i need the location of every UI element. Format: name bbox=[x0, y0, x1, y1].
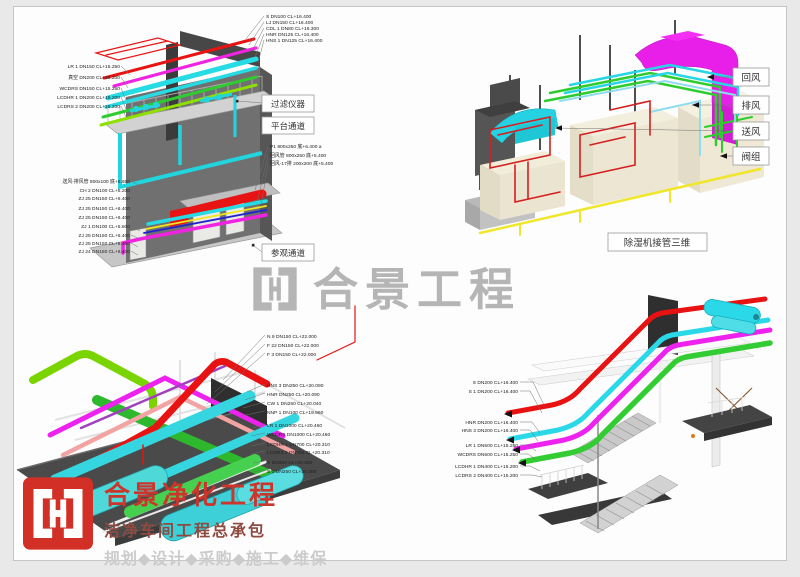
callout-exhaust-air: 排风 bbox=[741, 100, 761, 112]
pipe-label: ZJ 25 DN150 CL+6.400 bbox=[78, 241, 130, 247]
pipe-label: ZJ 25 DN150 CL+6.400 bbox=[78, 206, 130, 212]
pipe-label: WCDRS DN1000 CL+20.460 bbox=[267, 432, 330, 438]
pipe-label: S 1 DN250 CL+20.300 bbox=[267, 469, 317, 475]
watermark-text: 合景工程 bbox=[313, 267, 521, 312]
pipe-label: LCDHR 1 DN400 CL+15.200 bbox=[455, 464, 518, 470]
pipe-label: NNP 1 DN100 CL+19.960 bbox=[267, 410, 324, 416]
pipe-label: P1 800x250 底+6.400 a bbox=[270, 143, 322, 150]
pipe-label: S 1 DN200 CL+16.400 bbox=[469, 389, 519, 395]
pipe-labels: S DN200 CL+16.400 S 1 DN200 CL+16.400 HN… bbox=[455, 380, 518, 479]
watermark: 合景工程 bbox=[250, 264, 521, 314]
pipe-label: LR 1 DN1000 CL+20.460 bbox=[267, 423, 322, 429]
diagram-stair-piping: S DN200 CL+16.400 S 1 DN200 CL+16.400 HN… bbox=[420, 293, 780, 548]
pipe-label: HNS 3 DN200 CL+16.400 bbox=[462, 428, 519, 434]
pipe-label: S DN200 CL+16.400 bbox=[473, 380, 519, 386]
pipe-label: HNR DN200 CL+16.400 bbox=[465, 420, 518, 426]
pipe-label: HNR DN125 CL+16.400 bbox=[266, 32, 319, 38]
pipe-label: CH 2 DN100 CL+5.200 bbox=[80, 188, 131, 194]
pipe-label: HNR DN250 CL+20.090 bbox=[267, 392, 320, 398]
pipe-label: N 9 DN150 CL+22.000 bbox=[267, 334, 317, 340]
pipe-label: F 22 DN150 CL+22.000 bbox=[267, 343, 319, 349]
pipe-label: ZJ 25 DN150 CL+6.400 bbox=[78, 233, 130, 239]
callout-supply-air: 送风 bbox=[741, 126, 761, 138]
pipe-label: S DN350 CL+20.300 bbox=[267, 460, 313, 466]
company-text: 合景净化工程 洁净车间工程总承包 规划◆设计◆采购◆施工◆维保 bbox=[104, 477, 327, 569]
pipe-label: 回风管 800x250 底+5.400 bbox=[270, 152, 326, 159]
company-logo-icon bbox=[23, 477, 93, 550]
pipe-label: LCDRS 2 DN700 CL+20.310 bbox=[267, 450, 330, 456]
pipe-label: LJ DN150 CL+16.400 bbox=[266, 20, 313, 26]
pipe-label: HNS 1 DN125 CL+16.400 bbox=[266, 38, 323, 44]
callout-visitor-walkway: 参观通道 bbox=[271, 248, 306, 258]
pipe-label: 真空 DN200 CL+15.200 bbox=[68, 74, 120, 81]
watermark-logo-icon bbox=[250, 264, 300, 314]
pipe-label: CW 1 DN250 CL+20.040 bbox=[267, 401, 322, 407]
drawing-sheet-page: S DN100 CL+16.400 LJ DN150 CL+16.400 CDL… bbox=[0, 0, 800, 577]
pipe-label: ZJ 25 DN150 CL+6.400 bbox=[78, 196, 130, 202]
pipe-labels: N 9 DN150 CL+22.000 F 22 DN150 CL+22.000… bbox=[267, 334, 330, 475]
pipe-label: WCDRS DN500 CL+15.250 bbox=[458, 452, 519, 458]
pipe-label: F 3 DN150 CL+22.000 bbox=[267, 352, 316, 358]
pipe-label: HNS 3 DN250 CL+20.090 bbox=[267, 383, 324, 389]
pipe-label: S DN100 CL+16.400 bbox=[266, 14, 312, 20]
company-brand: 合景净化工程 洁净车间工程总承包 规划◆设计◆采购◆施工◆维保 bbox=[23, 477, 327, 569]
pipe-label: 送风-排风管 800x100 底+6.650 bbox=[62, 178, 130, 185]
callout-valve-group: 阀组 bbox=[741, 151, 761, 163]
diagram-building-piping: S DN100 CL+16.400 LJ DN150 CL+16.400 CDL… bbox=[30, 5, 365, 273]
pipe-label: LCDHR 1 DN700 CL+20.310 bbox=[267, 442, 330, 448]
company-subtitle: 洁净车间工程总承包 bbox=[104, 517, 327, 541]
diagram-dehumidifier-piping: 回风 排风 送风 阀组 除湿机接管三维 bbox=[420, 15, 790, 270]
pipe-label: CDL 1 DN80 CL+16.300 bbox=[266, 26, 319, 32]
company-name: 合景净化工程 bbox=[104, 481, 327, 510]
pipe-label: LR 1 DN500 CL+15.250 bbox=[466, 443, 519, 449]
pipe-label: LR 1 DN150 CL+15.250 bbox=[68, 64, 121, 70]
callout-filter-equipment: 过滤仪器 bbox=[271, 99, 306, 109]
pipe-label: LCDRS 2 DN400 CL+15.200 bbox=[455, 473, 518, 479]
callout-return-air: 回风 bbox=[741, 73, 761, 84]
pipe-label: ZJ 24 DN150 CL+6.400 bbox=[78, 249, 130, 255]
caption-dehumidifier-3d: 除湿机接管三维 bbox=[624, 237, 691, 249]
pipe-label: LCDHR 1 DN200 CL+15.200 bbox=[57, 95, 120, 101]
pipe-label: 回风-17排 200x200 底+5.400 bbox=[270, 160, 333, 167]
pipe-label: LCDRS 2 DN200 CL+15.200 bbox=[57, 104, 120, 110]
callout-platform-walkway: 平台通道 bbox=[271, 121, 306, 131]
company-tagline: 规划◆设计◆采购◆施工◆维保 bbox=[104, 545, 327, 569]
pipe-label: ZJ 25 DN150 CL+6.400 bbox=[78, 215, 130, 221]
pipe-label: WCDRS DN150 CL+15.250 bbox=[60, 86, 121, 92]
pipe-label: ZJ 1 DN100 CL+5.600 bbox=[81, 224, 130, 230]
